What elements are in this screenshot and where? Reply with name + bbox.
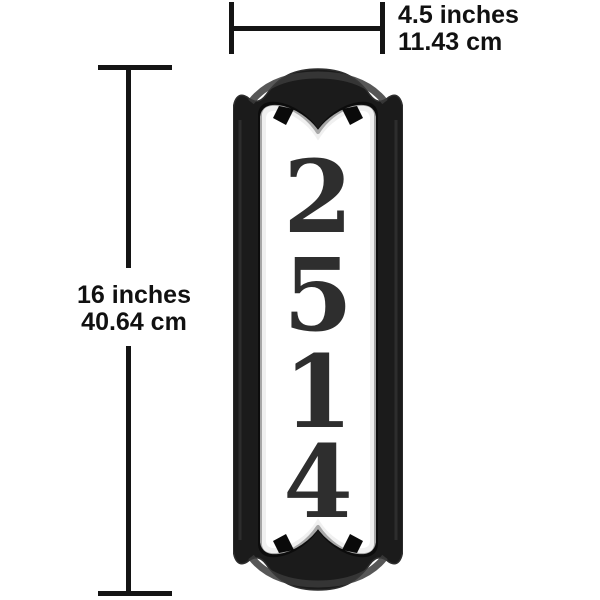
height-dimension-line-upper [126, 65, 131, 268]
address-plaque-image: 2 5 1 4 [233, 62, 403, 597]
width-metric-text: 11.43 cm [398, 29, 519, 56]
width-dimension-line [229, 26, 385, 31]
address-digit-4: 4 [283, 423, 353, 541]
height-imperial-text: 16 inches [58, 282, 210, 309]
height-dimension-label: 16 inches 40.64 cm [58, 282, 210, 336]
height-dimension-line-lower [126, 346, 131, 596]
product-dimension-diagram: 4.5 inches 11.43 cm 16 inches 40.64 cm [0, 0, 600, 600]
height-dimension-tick-bottom [98, 591, 172, 596]
width-imperial-text: 4.5 inches [398, 2, 519, 29]
width-dimension-tick-right [380, 2, 385, 54]
address-plaque-graphic: 2 5 1 4 [233, 62, 403, 597]
height-dimension-tick-top [98, 65, 172, 70]
width-dimension-label: 4.5 inches 11.43 cm [398, 2, 519, 56]
height-metric-text: 40.64 cm [58, 309, 210, 336]
